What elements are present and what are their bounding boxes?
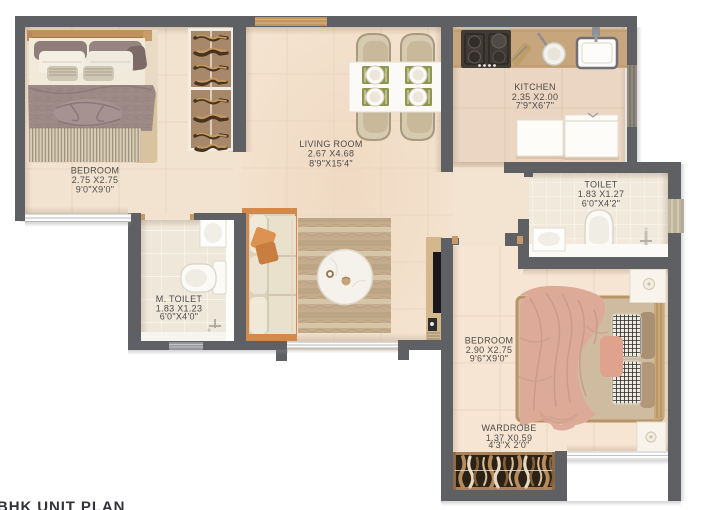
- svg-text:2.75 X2.75: 2.75 X2.75: [72, 175, 119, 185]
- svg-text:7'9"X6'7": 7'9"X6'7": [516, 101, 555, 111]
- svg-text:BHK UNIT PLAN: BHK UNIT PLAN: [0, 499, 125, 510]
- svg-text:WARDROBE: WARDROBE: [481, 423, 536, 433]
- svg-text:TOILET: TOILET: [584, 179, 617, 189]
- svg-text:9'0"X9'0": 9'0"X9'0": [76, 185, 115, 195]
- svg-text:BEDROOM: BEDROOM: [71, 166, 120, 176]
- svg-text:8'9"X15'4": 8'9"X15'4": [309, 159, 353, 169]
- svg-text:BEDROOM: BEDROOM: [465, 335, 514, 345]
- svg-text:LIVING ROOM: LIVING ROOM: [299, 139, 362, 149]
- svg-text:M. TOILET: M. TOILET: [156, 294, 203, 304]
- svg-text:KITCHEN: KITCHEN: [514, 82, 556, 92]
- svg-text:9'6"X9'0": 9'6"X9'0": [470, 354, 509, 364]
- svg-text:4'3"X 2'0": 4'3"X 2'0": [488, 440, 529, 450]
- svg-text:6'0"X4'0": 6'0"X4'0": [160, 312, 199, 322]
- svg-text:6'0"X4'2": 6'0"X4'2": [582, 198, 621, 208]
- svg-text:2.67 X4.68: 2.67 X4.68: [308, 149, 355, 159]
